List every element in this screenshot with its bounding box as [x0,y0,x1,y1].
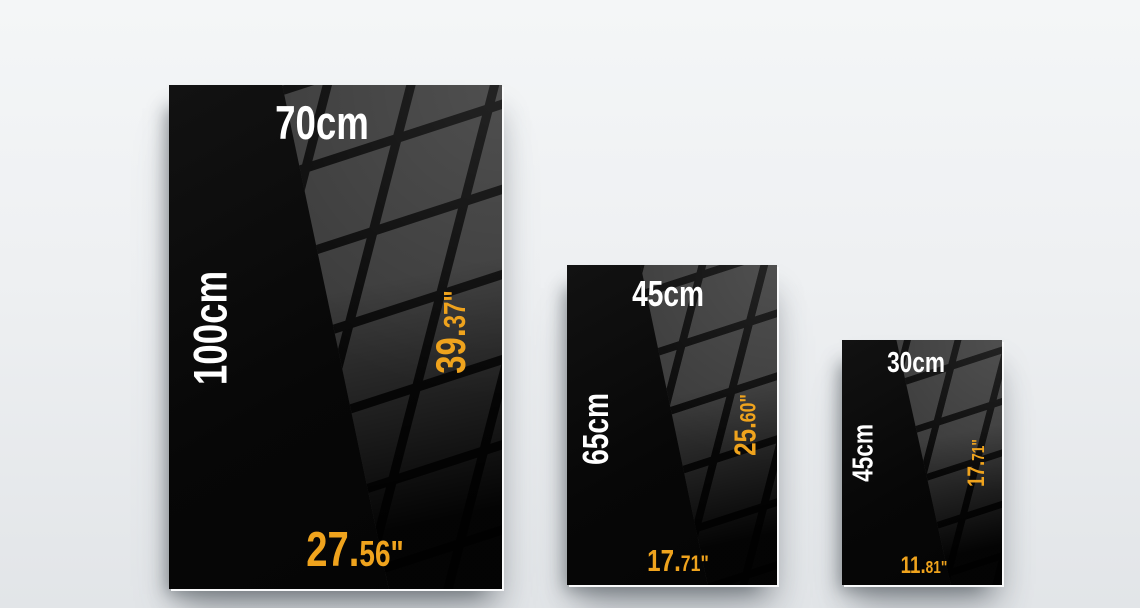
poster-large-100x70: 70cm 100cm 39.37" 27.56" [169,85,502,589]
inches-frac: 60" [738,394,761,422]
width-inches-label: 27.56" [307,526,404,575]
inches-main: 39. [430,328,472,374]
height-cm-label: 65cm [578,393,614,465]
width-cm-label: 30cm [887,349,945,378]
inches-frac: 81" [925,559,947,577]
inches-frac: 37" [440,290,471,328]
inches-main: 27. [307,526,360,575]
inches-frac: 71" [970,439,988,461]
inches-main: 17. [647,545,681,576]
width-cm-label: 70cm [275,99,369,146]
inches-frac: 71" [681,553,709,576]
size-comparison-graphic: 70cm 100cm 39.37" 27.56" 45cm 65cm 25.60… [0,0,1140,608]
inches-main: 11. [900,554,925,578]
poster-small-45x30: 30cm 45cm 17.71" 11.81" [842,340,1002,585]
height-inches-label: 17.71" [965,439,989,487]
height-cm-label: 45cm [850,424,879,482]
width-cm-label: 45cm [632,276,704,312]
inches-main: 25. [730,422,761,456]
height-inches-label: 39.37" [430,290,472,373]
height-inches-label: 25.60" [730,394,761,456]
width-inches-label: 17.71" [647,545,709,576]
height-cm-label: 100cm [187,271,234,385]
poster-medium-65x45: 45cm 65cm 25.60" 17.71" [567,265,777,585]
inches-frac: 56" [360,537,404,573]
width-inches-label: 11.81" [900,554,947,578]
inches-main: 17. [965,461,989,487]
